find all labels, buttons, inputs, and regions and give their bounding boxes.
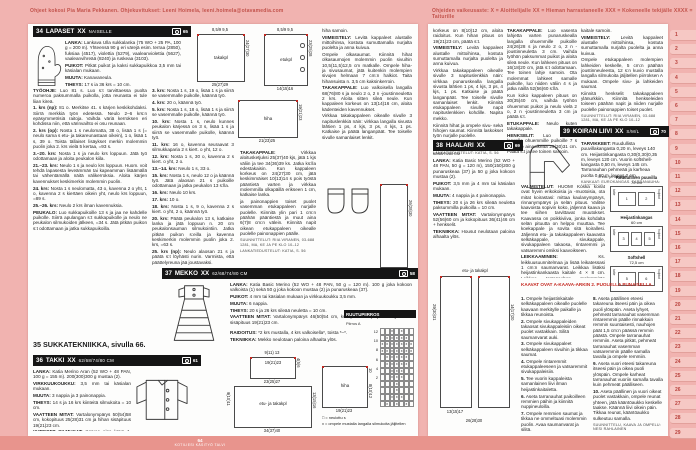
index-tab-14: 14	[670, 215, 696, 226]
magazine-spread: Ohjeet kokosi Pia Maria Pekkanen. Ohjeku…	[0, 0, 696, 450]
index-tab-1: 1	[670, 30, 696, 41]
chart-row-label: 4	[370, 365, 378, 374]
difficulty-badge: XX	[67, 357, 75, 364]
instruction-paragraph: 8. Aseta päällinen eteesi takareuna itse…	[593, 296, 663, 360]
instruction-paragraph: TAKAKAPPALE: Luo vasenta lahjetta varten…	[507, 28, 577, 92]
instruction-paragraph: PEUKALO: Luo sukkapuikoille 13 s ja jaa …	[33, 210, 147, 231]
dim-hiha36-right: 19(21)23	[298, 104, 303, 120]
index-tab-5: 5	[670, 87, 696, 98]
chart-caption: Piirros A	[346, 321, 361, 326]
instruction-paragraph: □ = neulottu s	[322, 416, 414, 420]
dim-mekko-left: 9(10)11	[226, 392, 231, 406]
chart-row-label: 2	[370, 374, 378, 383]
schematic-etukpl: etukpl	[264, 34, 308, 86]
instruction-paragraph: VIIMEISTELY: Levitä kappaleet alustalle …	[433, 45, 503, 66]
index-tab-26: 26	[670, 385, 696, 396]
instruction-paragraph: 3.–20. krs: Nosta 1 s ja neulo krs loppu…	[33, 151, 147, 162]
cutting-layout-width: 70 cm	[610, 181, 663, 185]
photo-page-number: 58	[410, 271, 415, 276]
cutting-layouts: Ruudullinen puuvilla70 cmtaitehulpiot12H…	[610, 176, 663, 296]
instruction-paragraph: TEKNIIKKA: Housut neulotaan paloina alha…	[433, 229, 515, 240]
section-title: HAALARI	[446, 142, 474, 149]
chart-row-label: 10	[370, 337, 378, 346]
socks-illustration	[324, 186, 374, 218]
instruction-paragraph: Ompele etukappaleen molempien lahkeiden …	[581, 57, 663, 89]
instruction-paragraph: 3. Ompele sivukappaleet selkäkappaleen s…	[521, 341, 589, 357]
cutting-layout-width: 72,5 cm	[610, 261, 663, 265]
selvage-label: hulpiot	[657, 189, 661, 199]
section-37-header: 37 MEKKO XX 62/68/74/80 CM 58	[162, 268, 418, 279]
instruction-paragraph: TARVIKKEET: Ruudullista puuvillakangasta…	[581, 141, 663, 178]
index-tab-29: 29	[670, 428, 696, 439]
instruction-paragraph: VIIMEISTELY: Levitä kappaleet alustalle …	[581, 35, 663, 56]
instruction-paragraph: Virkkaa takakappaleen oikealle sivulle 3…	[322, 113, 412, 139]
instruction-paragraph: PUIKOT: Pitkät puikot ja kaksi sukkapuik…	[65, 63, 181, 74]
chart-cell	[409, 354, 414, 361]
page-footer: 64 KOTILIESI KÄSITYÖ TALVI	[160, 438, 240, 447]
instruction-paragraph: Kun koko kappaleen pituus on 30(35)40 cm…	[507, 93, 577, 119]
index-tab-4: 4	[670, 73, 696, 84]
sewing-steps-col1: 1. Ompele heijastinkaitale selkäkappalee…	[521, 296, 589, 432]
chart-cell	[409, 374, 414, 381]
instruction-paragraph: 20. krs: Päätä peukalon 13 s, katkaise l…	[152, 216, 234, 248]
index-tab-20: 20	[670, 300, 696, 311]
footer-band: 64 KOTILIESI KÄSITYÖ TALVI	[0, 436, 696, 450]
instruction-paragraph: VAATTEEN MITAT: Vartalonympärys 52(56)60…	[433, 212, 515, 228]
instruction-paragraph: 15. krs: Nosta 1 s, neulo 12 o ja käännä…	[152, 173, 234, 189]
instruction-paragraph: ja painonappien toiset puolet vasemman e…	[240, 199, 316, 236]
instruction-paragraph: 6. Aseta tarranauhat paikoilleen remmien…	[521, 394, 589, 410]
index-tab-18: 18	[670, 271, 696, 282]
index-tab-28: 28	[670, 413, 696, 424]
instruction-paragraph: 2. krs (op): Nosta 1 s neulomatta, 38 o,…	[33, 128, 147, 149]
index-tab-11: 11	[670, 172, 696, 183]
index-tab-17: 17	[670, 257, 696, 268]
index-tab-10: 10	[670, 158, 696, 169]
pattern-piece: 2	[638, 192, 656, 206]
section-number: 38	[436, 142, 443, 149]
section-37-continuation: korkeus on 8(10)12 cm, aloita raidoitus.…	[433, 28, 503, 156]
instruction-paragraph: LEIKKAAMINEN: Ks. leikkuusuunnitelmaa ja…	[521, 254, 605, 278]
chart-cell	[409, 401, 414, 408]
credit-line: Ohjeet kokosi Pia Maria Pekkanen. Ohjeku…	[30, 8, 284, 14]
schematic-haalari-leg-right	[478, 276, 510, 408]
instruction-paragraph: x = ompele mustalla langalla silmukoita …	[322, 422, 414, 426]
instruction-paragraph: 16. krs: Neulo 10 krs.	[152, 190, 234, 195]
dim-mekkohiha-bottom: 19(21)23	[322, 408, 366, 413]
dim-takakpl-bottom: 25(27)29	[197, 82, 243, 87]
fold-label: taite	[612, 269, 616, 275]
chart-cell	[409, 335, 414, 342]
chart-cell	[409, 394, 414, 401]
section-title: LAPASET	[46, 28, 74, 35]
camera-icon	[172, 28, 181, 35]
dim-mekko-bottom: 34(37)40	[234, 428, 310, 433]
section-size: 62/68/74/80 CM	[79, 358, 114, 363]
instruction-paragraph: 3. krs: Nosta 1 s, 19 o, lisää 1 s ja si…	[152, 88, 234, 99]
index-tab-3: 3	[670, 58, 696, 69]
chart-cell	[409, 381, 414, 388]
dim-haalari-right: 14(17)20	[510, 304, 515, 320]
pattern-sheet-note: KAAVAT OVAT A-KAAVA-ARKIN 2. PUOLELLA PU…	[521, 282, 663, 287]
magazine-name: KOTILIESI KÄSITYÖ TALVI	[160, 443, 240, 447]
pattern-piece: 3	[618, 232, 629, 246]
section-size: 62/68/74/80 CM	[212, 271, 247, 276]
left-page: 34 LAPASET XX NAISELLE 65 LANKA: Lankava…	[28, 24, 418, 436]
instruction-paragraph: PUIKOT: 4 mm tai käsialan mukaan ja virk…	[230, 294, 412, 299]
instruction-paragraph: MUUTA: Kanavaneula.	[65, 75, 181, 80]
section-title: MEKKO	[175, 270, 198, 277]
cutting-layout: Heijastinkangas60 cmtaitehulpiot345	[610, 216, 663, 252]
dim-etukpl-top: 8,5/9 9,5	[264, 27, 306, 32]
instruction-paragraph: TIHEYS: 17 s ja 36 krs = 10 cm.	[65, 82, 181, 86]
jacket-illustration	[134, 372, 190, 424]
instruction-paragraph: 25.–26. krs: Neulo 2 krs ilman kavennuks…	[33, 203, 147, 208]
credit-line: SUUNNITTELUT: RIIA VIRANEN, 03-688 1281,…	[240, 238, 316, 247]
camera-icon	[399, 270, 408, 277]
dim-etukpl-right: 23(25)28	[308, 40, 313, 56]
section-38-sizes: 62/68/74/80 CM	[433, 152, 517, 156]
stitch-chart: xxxxxxxxxxxxxxxxxxxxxxxxxxxxxxxxxxxxxxxx…	[380, 328, 414, 407]
dim-haalari-bottom: 26(28)30	[440, 418, 508, 423]
instruction-paragraph: MUUTA: 3 nappia ja 3 painonappia.	[33, 393, 131, 398]
schematic-helmakpl	[380, 184, 408, 268]
fabric-rectangle: taitehulpiot345	[610, 226, 663, 252]
section-38-header: 38 HAALARI XX 69	[433, 140, 523, 151]
instruction-paragraph: 4. krs: 20 o, käännä työ.	[152, 100, 234, 105]
section-36-finishing: hiha samoin.VIIMEISTELY: Levitä kappalee…	[322, 28, 412, 184]
instruction-paragraph: 11. krs: 16 o, kavenna seuraavat 3 silmu…	[152, 142, 234, 153]
fold-label: taite	[612, 189, 616, 195]
instruction-paragraph: 10. krs: Nosta 1 s, neulo kunnes peukalo…	[152, 119, 234, 140]
credit-line: LANKATIEDUSTELUT: KATIA, S. 56	[240, 249, 316, 253]
photo-page-number: 69	[515, 143, 520, 148]
dim-haalari-name: etu- ja takakpl	[433, 268, 517, 273]
instruction-paragraph: 5. Tee vuorin kappaleista samanlainen li…	[521, 376, 589, 392]
index-tab-15: 15	[670, 229, 696, 240]
dim-etukpl-bottom: 14(15)16	[264, 86, 306, 91]
section-37-materials: LANKA: Katia Basic Merino (52 WO + 48 PA…	[230, 282, 412, 328]
photo-page-number: 61	[193, 358, 198, 363]
selvage-label: hulpiot	[657, 269, 661, 279]
index-tab-7: 7	[670, 115, 696, 126]
instruction-paragraph: MUUTA: 6 nappia.	[230, 301, 412, 306]
index-tab-25: 25	[670, 371, 696, 382]
index-tab-19: 19	[670, 286, 696, 297]
instruction-paragraph: 2. Ompele sivukappaleiden takaosat sivuk…	[521, 319, 589, 340]
instruction-paragraph: 1. krs (np): 81 o. Merkitse 41. s kärjen…	[33, 105, 147, 126]
index-tab-13: 13	[670, 200, 696, 211]
index-tab-22: 22	[670, 328, 696, 339]
pattern-piece: 5	[644, 232, 655, 246]
section-39-header: 39 KOIRAN LIIVI XX S/M/L 70	[560, 126, 669, 137]
section-36-instructions: TAKAKAPPALE: Virkkaa aloitusketjuksi 25(…	[240, 150, 316, 266]
instruction-paragraph: YHTEISET SILMUKAT: Korvaa aina krs:n 1. …	[33, 429, 131, 431]
instruction-paragraph: 17. krs: 10 o.	[152, 197, 234, 202]
sewing-steps-col2: 8. Aseta päällinen eteesi takareuna itse…	[593, 296, 663, 432]
index-tab-12: 12	[670, 186, 696, 197]
chart-title-bar: RUUTUPIIRROS	[344, 310, 416, 318]
dim-mekko-right-top: 4(5)6	[296, 358, 301, 368]
dim-haalari-leg: 13(15)17	[440, 409, 470, 414]
schematic-mekko-body: etu- ja takakpl	[234, 386, 312, 428]
instruction-paragraph: 10. Aseta päällinen ja vuori oikeat puol…	[593, 389, 663, 421]
instruction-paragraph: 21.–23. krs: Neulo 1 s ja neulo krs lopp…	[33, 163, 147, 184]
instruction-paragraph: TEKNIIKKA: Mekko neulotaan paloina alhaa…	[230, 337, 348, 342]
dim-haalari-left: 29(30)31	[432, 304, 437, 320]
pattern-piece: 4	[631, 232, 642, 246]
section-number: 39	[563, 128, 570, 135]
dim-takakpl-top: 8,5/9 9,5	[197, 27, 243, 32]
chart-cell: x	[409, 341, 414, 348]
selvage-label: hulpiot	[657, 229, 661, 239]
chart-row-label: 8	[370, 346, 378, 355]
instruction-paragraph: VALMISTELUT: HUOM! Koska koirat ovat hyv…	[521, 184, 605, 253]
fabric-rectangle: taitehulpiot12	[610, 186, 663, 212]
difficulty-legend: Ohjeiden vaikeusaste: X = Aloittelijalle…	[432, 8, 696, 20]
right-page: korkeus on 8(10)12 cm, aloita raidoitus.…	[428, 24, 668, 436]
instruction-paragraph: MUUTA: 4 nappia ja 4 painonappia.	[433, 193, 515, 198]
index-tab-16: 16	[670, 243, 696, 254]
dress-illustration	[164, 282, 224, 346]
dim-mekkohiha-right-bottom: 8(10)12	[368, 384, 373, 398]
instruction-paragraph: 5. krs: Nosta 1 s, 18 o, lisää 1 s ja si…	[152, 107, 234, 118]
chart-legend: □ = neulottu sx = ompele mustalla langal…	[322, 416, 414, 432]
instruction-paragraph: VAATTEEN MITAT: Vartalonympärys 50(54)58…	[33, 412, 131, 428]
difficulty-badge: XX	[77, 28, 85, 35]
instruction-paragraph: LANKA: Lankava Ulla sukkalanka (75 WO + …	[65, 40, 181, 61]
section-number: 34	[36, 28, 43, 35]
dim-helmakpl-right: 26(28)30	[408, 200, 413, 216]
instruction-paragraph: TAKAKAPPALE: Virkkaa aloitusketjuksi 25(…	[240, 150, 316, 198]
dim-hiha36-bottom: 21(23)25	[238, 138, 296, 143]
difficulty-badge: XX	[477, 142, 485, 149]
instruction-paragraph: Ompele olkasaumat. Kiinnitä hihat olkasa…	[322, 52, 412, 84]
instruction-paragraph: 9. Aseta vuori eteesi takareuna itseesi …	[593, 361, 663, 387]
index-tab-8: 8	[670, 129, 696, 140]
instruction-paragraph: VIIMEISTELY: Levitä kappaleet alustalle …	[322, 35, 412, 51]
section-36-materials: LANKA: Katia Merino Aran (52 WO + 48 PAN…	[33, 369, 131, 431]
instruction-paragraph: 12. krs: Nosta 1 s, 30 o, kavenna 2 s ki…	[152, 154, 234, 165]
section-title: KOIRAN LIIVI	[573, 128, 612, 135]
section-39-preparation: VALMISTELUT: HUOM! Koska koirat ovat hyv…	[521, 184, 605, 278]
instruction-paragraph: Kiinnitä henkselit takakappaleen ylänurk…	[581, 91, 663, 112]
index-tab-24: 24	[670, 357, 696, 368]
camera-icon	[182, 357, 191, 364]
cutting-layout-width: 60 cm	[610, 221, 663, 225]
section-35-heading: 35 SUKKATEKNIIKKA, sivulla 66.	[33, 340, 146, 349]
section-size: S/M/L	[626, 129, 639, 134]
instruction-paragraph: 25. krs (np): Neulo alaosan 21 s ja päät…	[152, 249, 234, 265]
section-34-materials: LANKA: Lankava Ulla sukkalanka (75 WO + …	[65, 40, 181, 86]
section-34-header: 34 LAPASET XX NAISELLE 65	[33, 26, 191, 37]
pattern-piece: 1	[618, 192, 636, 206]
instruction-paragraph: TAKAKAPPALE: Luo valkoisella langalla 68…	[322, 85, 412, 111]
instruction-paragraph: 18. krs: Nosta 1 s, 9 o, kavenna 2 s kie…	[152, 204, 234, 215]
section-34-instructions-col2: 3. krs: Nosta 1 s, 19 o, lisää 1 s ja si…	[152, 88, 234, 266]
instruction-paragraph: korkeus on 8(10)12 cm, aloita raidoitus.…	[433, 28, 503, 44]
index-tab-6: 6	[670, 101, 696, 112]
dim-mekko-right-bottom: 13(15)16	[312, 392, 317, 408]
section-38-materials: LANKA: Katia Basic Merino (52 WO + 48 PA…	[433, 158, 515, 264]
section-title: TAKKI	[46, 357, 64, 364]
index-tab-2: 2	[670, 44, 696, 55]
section-34-instructions-col1: TYÖOHJE: Luo 81 s. Luo s:t tarvittaessa …	[33, 88, 147, 338]
chart-cell	[409, 387, 414, 394]
instruction-paragraph: hiha samoin.	[322, 28, 412, 33]
index-tab-21: 21	[670, 314, 696, 325]
section-size: NAISELLE	[89, 29, 112, 34]
dim-takakpl-right: 24(27)30	[245, 40, 250, 56]
instruction-paragraph: RAIDOITUS: *2 krs mustalla, 4 krs valkoi…	[230, 330, 348, 335]
camera-icon	[504, 142, 513, 149]
chart-cell	[409, 368, 414, 375]
instruction-paragraph: kaitale samoin.	[581, 28, 663, 33]
chart-cell	[409, 361, 414, 368]
mitten-illustration	[31, 44, 63, 88]
section-38-finishing: kaitale samoin.VIIMEISTELY: Levitä kappa…	[581, 28, 663, 122]
instruction-paragraph: LANKA: Katia Basic Merino (52 WO + 48 PA…	[433, 158, 515, 179]
difficulty-badge: XX	[615, 128, 623, 135]
instruction-paragraph: 24. krs: Nosta 1 s neulomatta, 43 o, kav…	[33, 186, 147, 202]
schematic-mekko-yoke: 19(21)23	[250, 357, 296, 379]
instruction-paragraph: VIRKKUUKOUKKU: 3,5 mm tai käsialan mukaa…	[33, 381, 131, 392]
instruction-paragraph: 13.–14. krs: Neulo 1 s, 33 o.	[152, 166, 234, 171]
instruction-paragraph: LANKA: Katia Basic Merino (52 WO + 48 PA…	[230, 282, 412, 293]
index-tab-27: 27	[670, 399, 696, 410]
section-number: 36	[36, 357, 43, 364]
instruction-paragraph: 1. Ompele heijastinkaitale selkäkappalee…	[521, 296, 589, 317]
section-37-stripes-note: RAIDOITUS: *2 krs mustalla, 4 krs valkoi…	[230, 330, 348, 348]
fold-label: taite	[612, 229, 616, 235]
dim-mekko-mid: 23(25)27	[234, 379, 310, 384]
instruction-paragraph: 4. Ompele rintaremmit etukappaleeseen ja…	[521, 359, 589, 375]
instruction-paragraph: LANKA: Katia Merino Aran (52 WO + 48 PAN…	[33, 369, 131, 380]
difficulty-badge: XX	[201, 270, 209, 277]
fabric-rectangle: taitehulpiot56	[610, 266, 663, 292]
photo-page-number: 65	[183, 29, 188, 34]
instruction-paragraph: TYÖOHJE: Luo 81 s. Luo s:t tarvittaessa …	[33, 88, 147, 104]
index-tab-9: 9	[670, 144, 696, 155]
schematic-haalari-leg-left	[440, 276, 472, 408]
credit-line: SUUNNITTELUT: RIIA VIRANEN, 03-688 1281,…	[581, 114, 663, 122]
instruction-paragraph: Virkkaa takakappaleen oikealle sivulle 3…	[433, 68, 503, 121]
index-tab-23: 23	[670, 342, 696, 353]
cutting-layout: Ruudullinen puuvilla70 cmtaitehulpiot12	[610, 176, 663, 212]
photo-page-number: 70	[661, 129, 666, 134]
schematic-takakpl: takakpl	[197, 34, 245, 82]
chart-cell: x	[409, 348, 414, 355]
instruction-paragraph: Kiinnitä hihat ja ompele sivu- sekä hiho…	[433, 123, 503, 139]
instruction-paragraph: 7. Ompele remmien saumat ja tikkaa ne om…	[521, 411, 589, 432]
chart-row-labels: 12108642	[370, 328, 378, 383]
instruction-paragraph: TIHEYS: 14 s ja 16 krs kiinteitä silmuko…	[33, 400, 131, 411]
dim-mekko-top: 9(11) 13	[250, 350, 294, 355]
instruction-paragraph: PUIKOT: 3,5 mm ja 4 mm tai käsialan muka…	[433, 181, 515, 192]
chart-row-label: 12	[370, 328, 378, 337]
instruction-paragraph: TIHEYS: 20 s ja 26 krs sileää neuletta p…	[433, 200, 515, 211]
credit-line: SUUNNITTELU, KAAVA JA OMPELU: NESI RAHLA…	[593, 423, 663, 432]
schematic-mekko-hiha: hiha	[322, 366, 368, 408]
chart-row-label: 6	[370, 356, 378, 365]
schematic-hiha-36: hiha	[238, 100, 298, 138]
chart-cell	[409, 328, 414, 335]
camera-icon	[650, 128, 659, 135]
section-number: 37	[165, 270, 172, 277]
section-36-header: 36 TAKKI XX 62/68/74/80 CM 61	[33, 355, 201, 366]
